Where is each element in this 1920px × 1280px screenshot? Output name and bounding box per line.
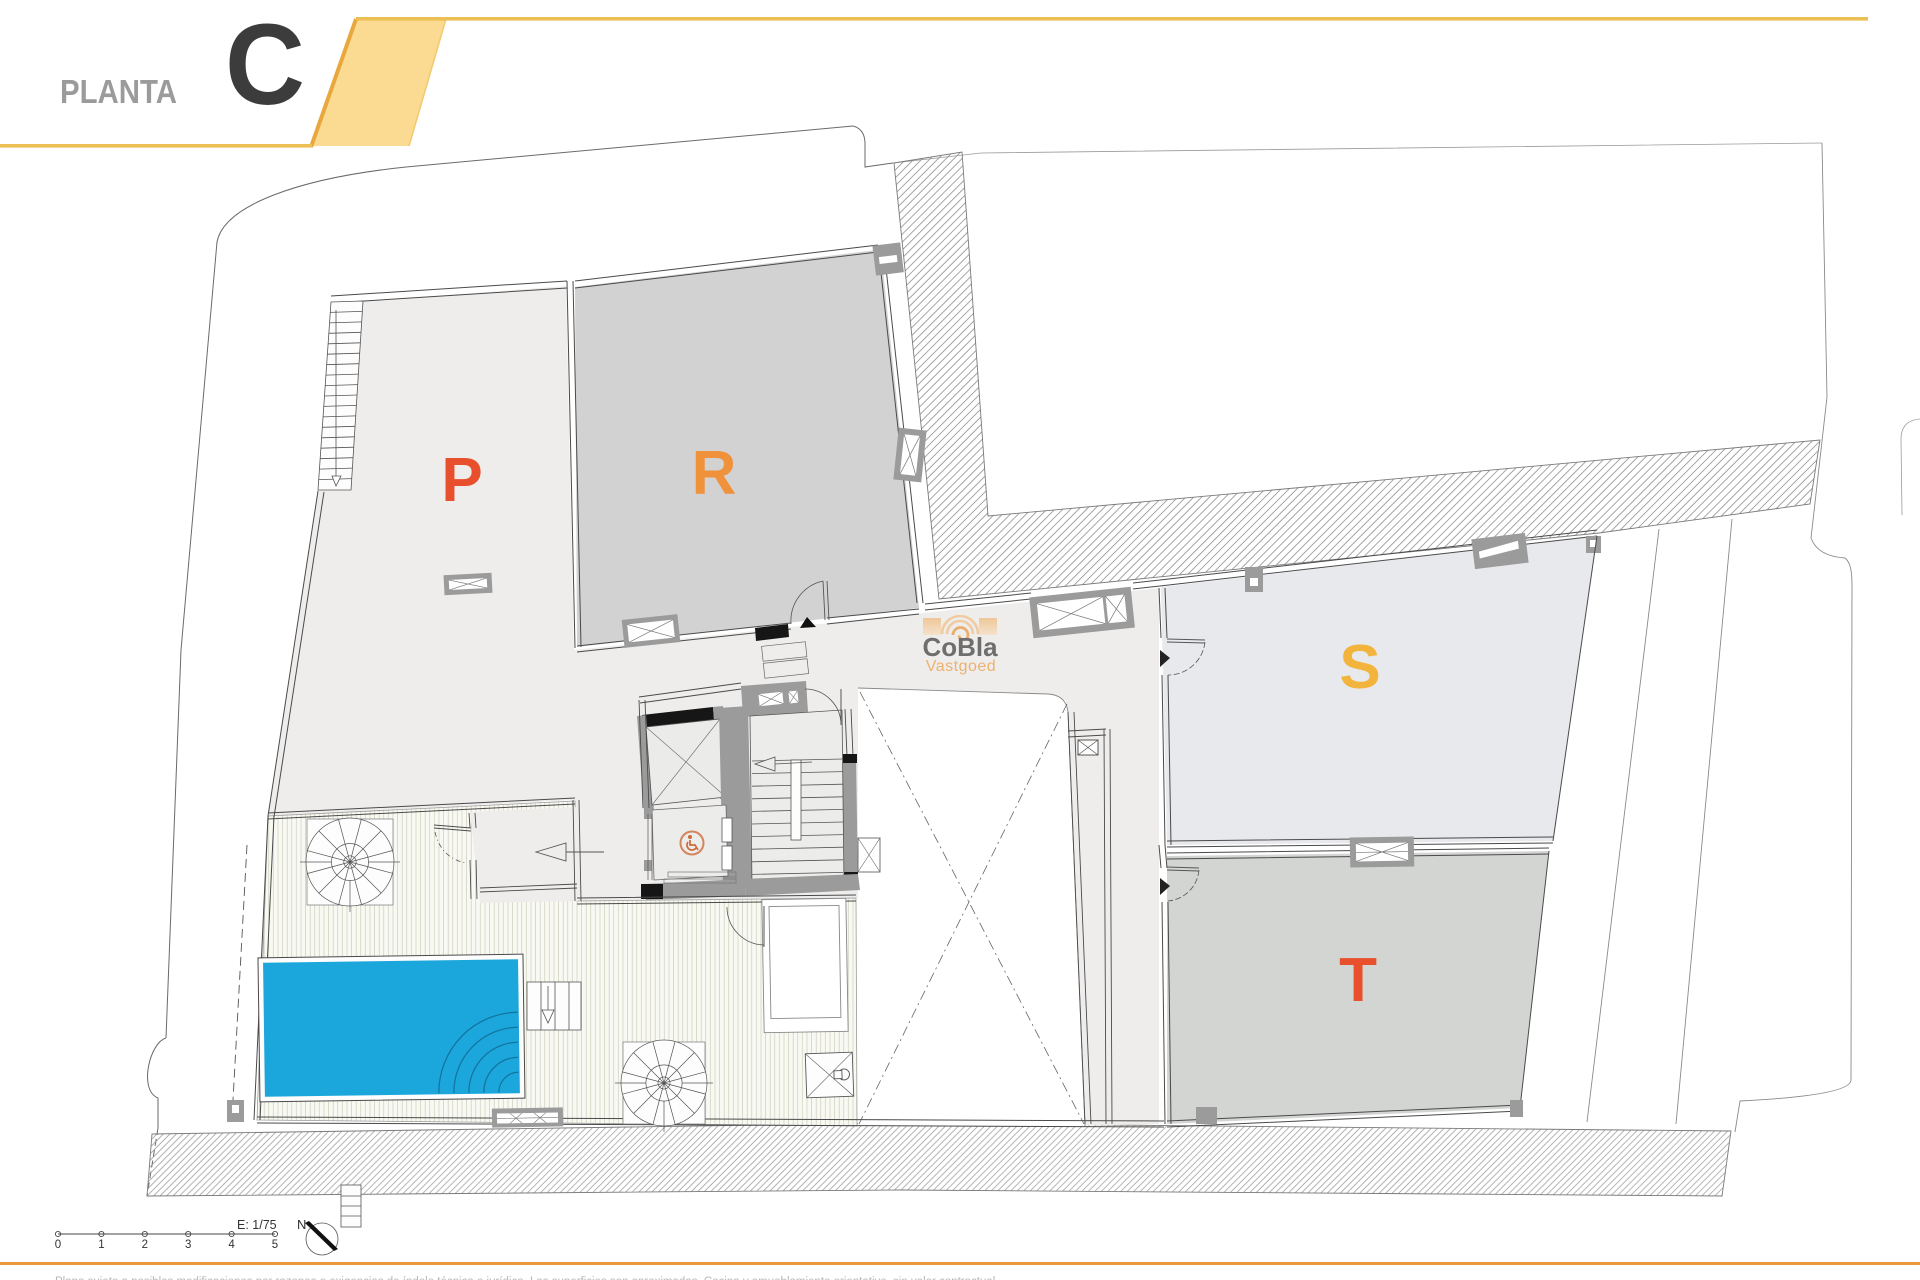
svg-text:4: 4 — [228, 1239, 235, 1251]
svg-text:3: 3 — [185, 1239, 191, 1251]
svg-text:T: T — [1339, 946, 1377, 1015]
svg-text:PLANTA: PLANTA — [60, 73, 177, 110]
svg-text:Plano sujeto a posibles modifi: Plano sujeto a posibles modificaciones p… — [55, 1276, 999, 1280]
svg-text:1: 1 — [98, 1239, 104, 1251]
svg-text:2: 2 — [142, 1239, 148, 1251]
svg-text:0: 0 — [55, 1239, 61, 1251]
svg-text:C: C — [225, 1, 305, 129]
svg-text:N: N — [297, 1217, 306, 1232]
svg-text:5: 5 — [272, 1239, 278, 1251]
svg-text:S: S — [1339, 633, 1380, 702]
svg-text:P: P — [441, 446, 482, 515]
svg-text:R: R — [692, 439, 737, 508]
svg-text:E: 1/75: E: 1/75 — [237, 1218, 277, 1232]
svg-text:Vastgoed: Vastgoed — [926, 658, 996, 675]
